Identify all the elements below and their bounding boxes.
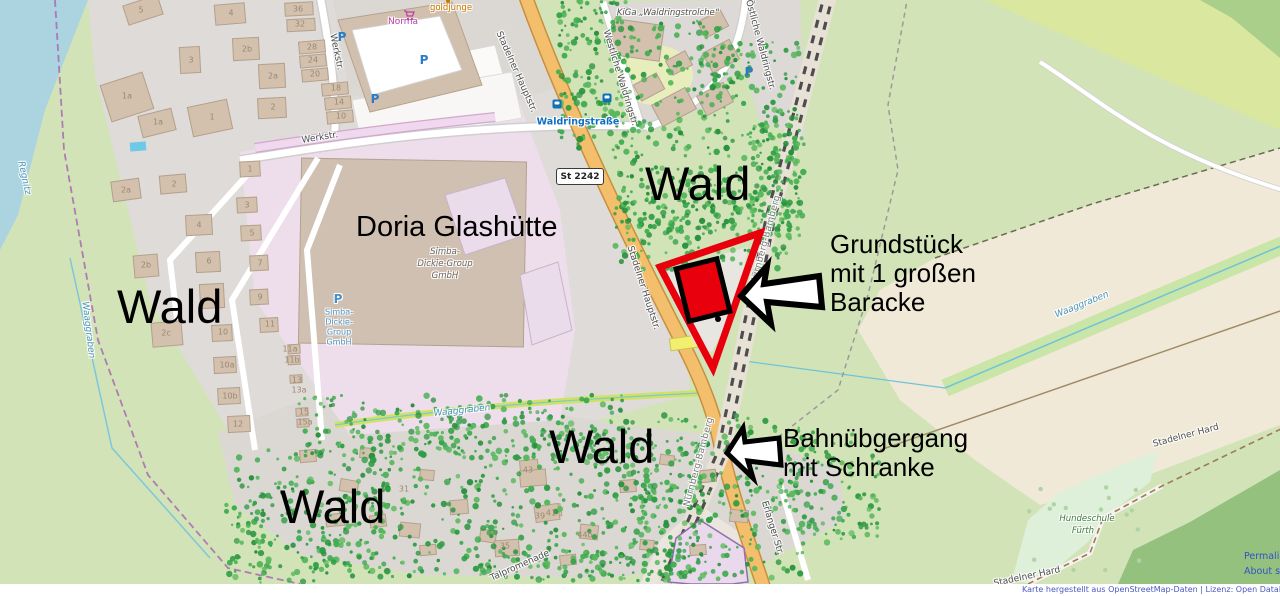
arrow-to-grundstueck bbox=[741, 266, 822, 324]
poi-dot bbox=[715, 316, 721, 322]
map-canvas: Werkstr.Werkstr.Stadelner Hauptstr.Stade… bbox=[0, 0, 1280, 584]
arrow-to-bahnuebergang bbox=[727, 428, 781, 478]
annotation-layer bbox=[0, 0, 1280, 584]
osm-attribution: Karte hergestellt aus OpenStreetMap-Date… bbox=[1022, 585, 1280, 594]
attribution-bar: Karte hergestellt aus OpenStreetMap-Date… bbox=[0, 584, 1280, 596]
